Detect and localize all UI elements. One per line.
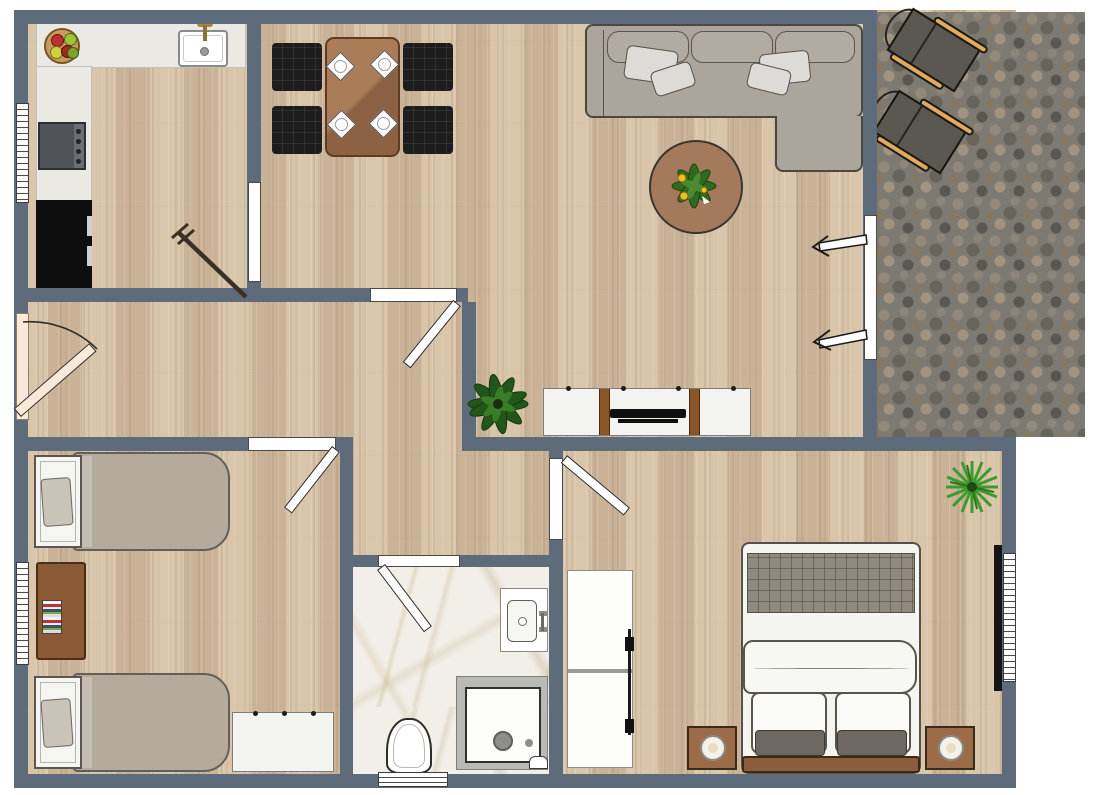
foot-bench [742,756,920,773]
dining-chair[interactable] [272,106,322,154]
sideboard-divider [689,389,700,435]
dresser[interactable] [232,712,334,772]
wall-top [14,10,877,24]
sideboard-knob [676,386,681,391]
kids-bedroom-doorway[interactable] [248,437,336,451]
blanket-crease [753,668,909,669]
stove-knob [76,139,81,144]
wall-bottom [14,774,1016,788]
round-rug[interactable] [649,140,743,234]
wardrobe-shelf-line [568,669,632,673]
stove[interactable] [38,122,86,170]
wardrobe-handle [625,719,634,733]
books [42,600,62,634]
wall-bedroom1-right [340,437,353,774]
dresser-knob [282,711,287,716]
tv-stand [618,419,678,423]
bed-pillow-dark [755,730,825,756]
vanity-drain [518,617,527,626]
appliance-handle [87,246,92,266]
dresser-knob [253,711,258,716]
kids-bedroom-window[interactable] [16,562,29,665]
sideboard-knob [621,386,626,391]
kitchen-window[interactable] [16,103,29,203]
toilet[interactable] [386,718,432,774]
bed-folded-blanket [743,640,917,694]
double-bed[interactable] [741,542,921,774]
shower-step [529,756,548,769]
tv-sideboard[interactable] [543,388,751,436]
toilet-seat [393,724,425,768]
nightstand[interactable] [925,726,975,770]
sofa-chaise[interactable] [775,116,863,172]
shower-dot [525,739,533,747]
tv[interactable] [610,409,686,418]
master-bedroom-window[interactable] [1003,553,1016,682]
shower-tray [465,687,541,763]
shower-drain [493,731,513,751]
dining-chair[interactable] [403,106,453,154]
bathroom-window[interactable] [378,772,448,787]
fruit-bowl[interactable] [44,28,80,64]
bed-headboard-grid [747,553,915,613]
kitchen-faucet-stem [203,25,207,41]
single-bed-blanket[interactable] [72,452,230,551]
hall-living-doorway[interactable] [370,288,457,302]
fruit-red [51,34,64,47]
wardrobe[interactable] [567,570,633,768]
dining-chair[interactable] [272,43,322,91]
stove-knob [76,129,81,134]
desk[interactable] [36,562,86,660]
vanity-faucet-stem [541,613,544,631]
bathroom-doorway[interactable] [378,555,460,567]
bed-pillow [40,698,73,748]
master-bedroom-doorway[interactable] [549,458,563,540]
nightstand[interactable] [687,726,737,770]
lamp [938,735,964,761]
kitchen-door-closed[interactable] [248,182,261,282]
stove-knob [76,159,81,164]
floor-plan [0,0,1100,795]
appliance-handle [87,216,92,236]
single-bed-blanket[interactable] [72,673,230,772]
wall-hall-living [462,302,476,451]
sofa-armrest [603,30,604,116]
bed-pillow [40,477,73,527]
patio-floor [877,12,1085,437]
sideboard-knob [566,386,571,391]
sideboard-divider [599,389,610,435]
kitchen-appliance-black[interactable] [36,200,92,290]
sideboard-knob [731,386,736,391]
patio-slider-opening[interactable] [864,215,877,360]
lamp [700,735,726,761]
fruit-green2 [67,47,79,59]
bed-pillow-dark [837,730,907,756]
wardrobe-handle [625,637,634,651]
shower[interactable] [456,676,548,770]
dresser-knob [311,711,316,716]
bathroom-vanity[interactable] [500,588,548,652]
wall-living-bottom [462,437,1016,451]
dining-chair[interactable] [403,43,453,91]
sink-drain [200,47,209,56]
stove-knob [76,149,81,154]
